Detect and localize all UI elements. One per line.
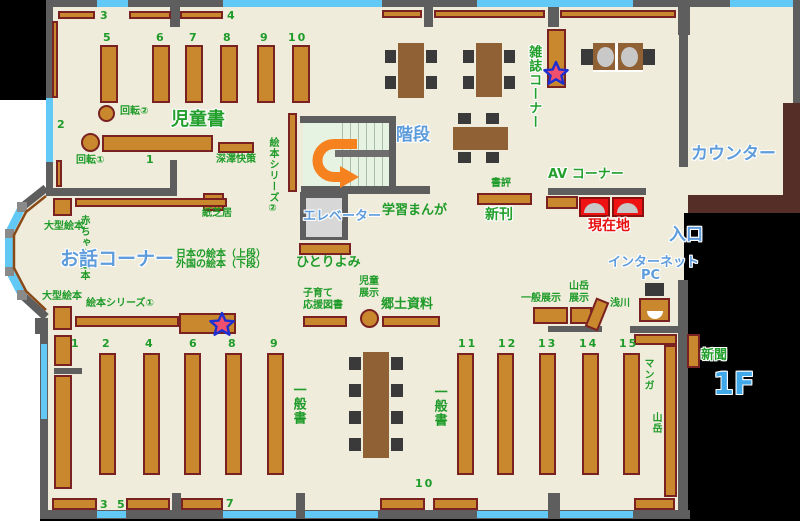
shelf-number-label: 11	[458, 337, 477, 350]
shelf-number-label: 5	[103, 31, 113, 44]
window	[305, 511, 378, 518]
area-label: 紙芝居	[202, 208, 232, 220]
area-label: 回転②	[120, 106, 148, 118]
chair	[463, 76, 474, 89]
floor-badge: 1F	[713, 368, 754, 401]
wall-segment	[678, 0, 690, 35]
label-magazine-corner: 雑誌コーナー	[526, 45, 540, 135]
bookshelf	[180, 11, 223, 19]
wall-segment	[678, 280, 688, 513]
shelf-number-label: 6	[189, 337, 199, 350]
wall-segment	[793, 7, 800, 103]
bookshelf	[634, 498, 675, 510]
room-title-story-corner: お話コーナー	[60, 249, 174, 270]
area-label: 回転①	[76, 155, 104, 167]
bookshelf	[497, 353, 514, 475]
outside-black	[0, 0, 46, 100]
area-label: 書評	[491, 178, 511, 190]
library-floor-map: 児童書 お話コーナー 階段 カウンター エレベーター 雑誌コーナー AV コーナ…	[0, 0, 800, 521]
bookshelf	[99, 353, 116, 475]
area-label: 絵本シリーズ①	[86, 298, 154, 310]
label-av-corner: AV コーナー	[548, 168, 624, 182]
shelf-number-label: 8	[223, 31, 233, 44]
bookshelf	[129, 11, 171, 19]
sofa-armrest	[643, 49, 655, 65]
bookshelf	[382, 10, 422, 18]
bookshelf	[303, 316, 347, 327]
chair	[349, 384, 361, 397]
label-current-location: 現在地	[588, 219, 630, 234]
wall-segment	[630, 326, 678, 333]
bookshelf	[539, 353, 556, 475]
area-label: 深澤快策	[216, 154, 256, 166]
bookshelf	[634, 334, 677, 345]
bookshelf	[152, 45, 170, 103]
chair	[349, 411, 361, 424]
room-title-childrens-books: 児童書	[171, 110, 225, 130]
bay-window	[0, 185, 56, 325]
newspaper-rack	[687, 334, 700, 368]
shelf-number-label: 12	[498, 337, 517, 350]
bookshelf	[546, 196, 578, 209]
sofa-cushion	[597, 47, 614, 67]
chair	[426, 50, 437, 63]
bookshelf	[56, 160, 62, 187]
bookshelf	[58, 11, 95, 19]
bookshelf	[143, 353, 160, 475]
label-elevator: エレベーター	[303, 210, 381, 224]
reading-table	[363, 352, 389, 458]
chair	[391, 411, 403, 424]
chair	[391, 438, 403, 451]
bookshelf	[533, 307, 568, 324]
area-label: 大型絵本	[42, 291, 82, 303]
window	[560, 511, 633, 518]
bookshelf	[126, 498, 170, 510]
wall-segment	[548, 493, 560, 511]
label-newspaper: 新聞	[701, 349, 727, 363]
sofa-cushion	[621, 47, 638, 67]
shelf-number-label: 7	[226, 497, 236, 510]
wall-segment	[170, 0, 180, 27]
area-label: マンガ	[641, 358, 653, 391]
shelf-number-label: 13	[538, 337, 557, 350]
chair	[458, 113, 471, 124]
bookshelf	[477, 193, 532, 205]
counter-desk	[688, 195, 800, 213]
bookshelf	[560, 10, 676, 18]
bookshelf	[299, 243, 351, 255]
star-marker	[209, 311, 235, 337]
bookshelf	[54, 335, 72, 366]
area-label: 学習まんが	[382, 203, 447, 219]
label-counter: カウンター	[691, 145, 776, 164]
bookshelf	[382, 316, 440, 327]
chair	[463, 50, 474, 63]
wall-segment	[170, 160, 177, 188]
bookshelf	[380, 498, 425, 510]
window	[41, 344, 47, 419]
area-label: 子育て 応援図書	[303, 288, 343, 312]
wall-segment	[548, 188, 646, 195]
chair	[504, 50, 515, 63]
wall-segment	[300, 116, 396, 123]
bookshelf	[185, 45, 203, 103]
chair	[486, 152, 499, 163]
sofa-divider	[593, 70, 643, 72]
shelf-number-label: 3	[100, 498, 110, 511]
bookshelf	[54, 375, 72, 489]
wall-segment	[45, 188, 177, 196]
wall-segment	[679, 35, 688, 167]
area-label: 山岳	[649, 412, 661, 434]
chair	[349, 438, 361, 451]
wall-segment	[46, 0, 97, 7]
chair	[391, 357, 403, 370]
shelf-number-label: 1	[146, 153, 156, 166]
area-label: 絵本シリーズ②	[266, 137, 278, 215]
shelf-number-label: 8	[228, 337, 238, 350]
chair	[504, 76, 515, 89]
chair	[349, 357, 361, 370]
area-label: 浅川	[610, 298, 630, 310]
u-turn-arrow-icon	[305, 135, 365, 191]
bookshelf	[181, 498, 223, 510]
label-entrance: 入口	[669, 226, 703, 245]
window	[477, 511, 548, 518]
shelf-number-label: 2	[102, 337, 112, 350]
area-label: 一般展示	[521, 293, 561, 305]
bookshelf	[52, 21, 58, 98]
bookshelf	[288, 113, 297, 192]
window	[223, 0, 382, 7]
rotating-rack	[81, 133, 100, 152]
label-stairs: 階段	[396, 126, 430, 145]
wall-segment	[389, 123, 396, 190]
bookshelf	[52, 498, 97, 510]
label-new-arrivals: 新刊	[485, 208, 513, 223]
bookshelf	[434, 10, 545, 18]
bookshelf	[75, 198, 227, 207]
bookshelf	[220, 45, 238, 103]
bookshelf	[257, 45, 275, 103]
bookshelf	[623, 353, 640, 475]
shelf-number-label: 4	[227, 9, 237, 22]
bookshelf	[664, 345, 677, 497]
wall-segment	[54, 368, 82, 374]
rotating-rack	[98, 105, 115, 122]
chair	[645, 283, 664, 296]
label-internet-pc: PC	[641, 269, 660, 283]
sofa-armrest	[581, 49, 593, 65]
wall-segment	[793, 0, 800, 7]
bookshelf	[102, 135, 213, 152]
reading-table	[476, 43, 502, 97]
window	[730, 0, 793, 7]
wall-segment	[172, 493, 181, 511]
shelf-number-label: 10	[415, 477, 434, 490]
bookshelf	[218, 142, 254, 153]
window	[97, 0, 128, 7]
bookshelf	[100, 45, 118, 103]
rotating-rack	[360, 309, 379, 328]
chair	[385, 50, 396, 63]
bookshelf	[75, 316, 179, 327]
wall-segment	[296, 493, 305, 511]
chair	[458, 152, 471, 163]
area-label: 外国の絵本（下段）	[176, 259, 266, 271]
shelf-number-label: 3	[100, 9, 110, 22]
shelf-number-label: 7	[189, 31, 199, 44]
shelf-number-label: 14	[579, 337, 598, 350]
area-label: 一般書	[290, 383, 306, 425]
area-label: 一般書	[431, 385, 447, 427]
bookshelf	[267, 353, 284, 475]
bookshelf	[225, 353, 242, 475]
window	[46, 98, 53, 162]
shelf-number-label: 6	[156, 31, 166, 44]
bookshelf	[184, 353, 201, 475]
window	[477, 0, 633, 7]
bookshelf	[292, 45, 310, 103]
shelf-number-label: 5	[117, 498, 127, 511]
bookshelf	[457, 353, 474, 475]
shelf-number-label: 2	[57, 118, 67, 131]
window	[97, 511, 126, 518]
area-label: 山岳 展示	[569, 281, 589, 305]
bookshelf	[433, 498, 478, 510]
chair	[486, 113, 499, 124]
shelf-number-label: 4	[145, 337, 155, 350]
sofa-divider	[615, 43, 618, 71]
chair	[391, 384, 403, 397]
wall-segment	[424, 0, 433, 27]
reading-table	[453, 127, 508, 150]
chair	[426, 76, 437, 89]
shelf-number-label: 15	[619, 337, 638, 350]
bookshelf	[582, 353, 599, 475]
shelf-number-label: 9	[260, 31, 270, 44]
reading-table	[398, 43, 424, 98]
star-marker	[543, 60, 569, 86]
area-label: 郷土資料	[381, 297, 433, 313]
chair	[385, 76, 396, 89]
shelf-number-label: 1	[71, 337, 81, 350]
shelf-number-label: 10	[288, 31, 307, 44]
window	[223, 511, 296, 518]
shelf-number-label: 9	[270, 337, 280, 350]
area-label: 児童 展示	[359, 276, 379, 300]
area-label: ひとりよみ	[296, 255, 361, 271]
